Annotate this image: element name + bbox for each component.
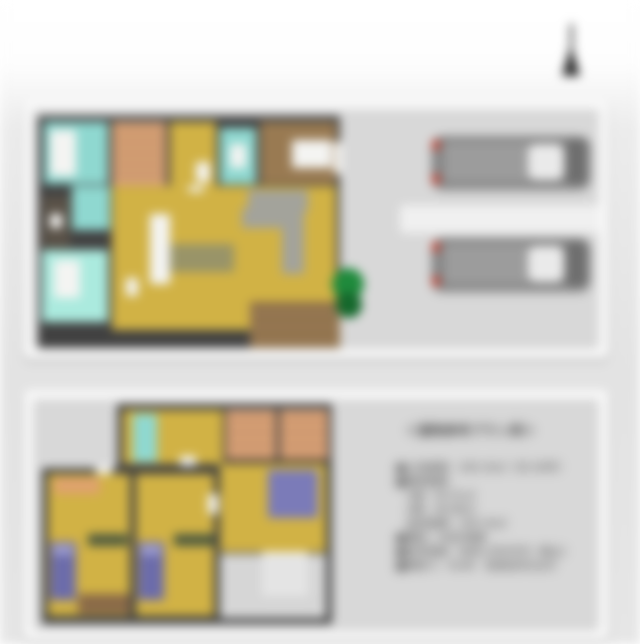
spec-line: ■土地面積：100.19㎡（30.30坪） xyxy=(396,461,614,475)
car-hood xyxy=(566,140,586,184)
car-2 xyxy=(432,238,590,290)
entrance-porch xyxy=(250,302,340,348)
car-windshield xyxy=(528,246,564,282)
blurred-scene: ＜建物参考プラン例＞ ■土地面積：100.19㎡（30.30坪） ■建物面積 1… xyxy=(0,0,640,644)
north-arrow-icon xyxy=(562,44,580,76)
spec-line: ■建物面積 xyxy=(396,475,614,489)
car-hood xyxy=(566,242,586,286)
closet-left xyxy=(226,410,276,460)
entry-door-opening xyxy=(334,142,342,174)
sofa-back xyxy=(242,208,304,228)
toilet-room xyxy=(220,128,256,184)
car-taillight xyxy=(432,276,440,286)
bathroom-2f xyxy=(133,414,157,462)
staircase xyxy=(112,122,166,188)
entrance-hall xyxy=(260,122,336,184)
car-roof xyxy=(444,244,532,284)
fixture xyxy=(50,214,62,228)
spec-line: ■参考価格：本体1,650万円（税込） xyxy=(396,545,614,559)
closet-right xyxy=(280,410,328,460)
door-opening xyxy=(126,278,138,296)
corridor-teal xyxy=(72,186,110,230)
spec-line: 延床面積：100.19㎡ xyxy=(396,517,614,531)
door-opening xyxy=(96,466,112,474)
kitchen-island xyxy=(150,214,170,284)
parking-bay-divider xyxy=(400,205,600,233)
car-taillight xyxy=(432,140,440,150)
tree-icon xyxy=(336,292,362,318)
spec-line: ■間取り：4LDK 駐車並列2台可 xyxy=(396,559,614,573)
shoe-cabinet xyxy=(292,140,332,168)
plan-title: ＜建物参考プラン例＞ xyxy=(406,420,614,439)
desk xyxy=(174,534,214,546)
car-taillight xyxy=(432,242,440,252)
hallway-top xyxy=(170,122,216,186)
desk xyxy=(78,594,130,614)
bed xyxy=(268,470,318,518)
door-opening xyxy=(180,456,196,466)
spec-line: 1階：50.51㎡ xyxy=(396,489,614,503)
floorplan-screenshot: ＜建物参考プラン例＞ ■土地面積：100.19㎡（30.30坪） ■建物面積 1… xyxy=(0,0,640,644)
floor2-plan xyxy=(40,402,334,626)
pillow xyxy=(141,545,161,555)
spec-line: ■構造：木造2階建 xyxy=(396,531,614,545)
washing-machine xyxy=(54,260,80,298)
storage-room xyxy=(42,196,70,248)
spec-line: 2階：49.68㎡ xyxy=(396,503,614,517)
sofa-seat xyxy=(282,228,304,274)
washstand xyxy=(196,162,210,182)
bathroom-floor xyxy=(44,122,108,184)
door-opening xyxy=(188,186,204,192)
bed xyxy=(138,542,164,600)
floor1-plan xyxy=(38,116,340,348)
bathtub xyxy=(50,130,76,176)
dining-rug xyxy=(170,244,234,272)
plan-card: ＜建物参考プラン例＞ ■土地面積：100.19㎡（30.30坪） ■建物面積 1… xyxy=(396,420,614,573)
desk xyxy=(54,478,100,494)
pillow xyxy=(53,545,73,555)
car-1 xyxy=(432,136,590,188)
car-roof xyxy=(444,142,532,182)
washroom xyxy=(42,250,108,322)
door-opening xyxy=(208,494,218,514)
stairwell-2f xyxy=(262,552,308,598)
toilet xyxy=(230,144,246,168)
bed xyxy=(50,542,76,600)
car-windshield xyxy=(528,144,564,180)
car-taillight xyxy=(432,174,440,184)
desk xyxy=(88,534,128,546)
